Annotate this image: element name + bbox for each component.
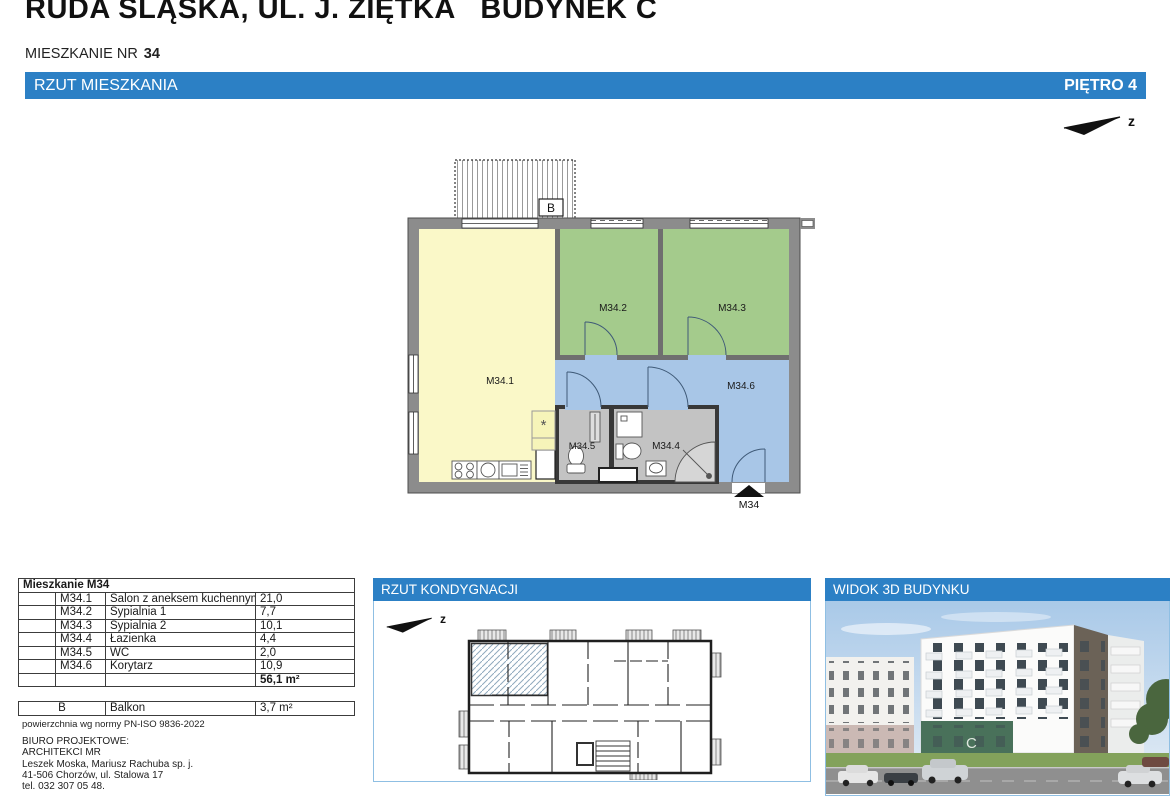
balcony-name: Balkon — [106, 702, 256, 716]
storey-panel: RZUT KONDYGNACJI z — [373, 578, 811, 782]
room-label-m343: M34.3 — [718, 303, 746, 314]
room-name: Sypialnia 2 — [106, 619, 256, 633]
storey-north-label: z — [440, 612, 446, 626]
office-info: BIURO PROJEKTOWE: ARCHITEKCI MR Leszek M… — [22, 736, 193, 792]
main-building: C — [921, 625, 1144, 753]
room-code: M34.5 — [56, 646, 106, 660]
room-name: Łazienka — [106, 633, 256, 647]
room-area: 21,0 — [256, 592, 355, 606]
room-code: M34.6 — [56, 660, 106, 674]
apartment-floor-plan: B — [395, 150, 815, 510]
office-partners: Leszek Moska, Mariusz Rachuba sp. j. — [22, 759, 193, 770]
balcony: B — [455, 160, 575, 220]
table-total-row: 56,1 m² — [19, 673, 355, 687]
office-address: 41-506 Chorzów, ul. Stalowa 17 — [22, 770, 193, 781]
table-row: M34.5WC2,0 — [19, 646, 355, 660]
building-3d-render: C — [826, 601, 1169, 794]
area-table: Mieszkanie M34 M34.1Salon z aneksem kuch… — [18, 578, 355, 687]
room-label-m342: M34.2 — [599, 303, 627, 314]
balcony-code: B — [19, 702, 106, 716]
room-bedroom2 — [663, 229, 789, 355]
total-area: 56,1 m² — [256, 673, 355, 687]
section-bar-title: RZUT MIESZKANIA — [34, 77, 178, 95]
floor-badge: PIĘTRO 4 — [1064, 77, 1137, 95]
table-header-row: Mieszkanie M34 — [19, 579, 355, 593]
section-bar: RZUT MIESZKANIA PIĘTRO 4 — [25, 72, 1146, 99]
view3d-panel-title: WIDOK 3D BUDYNKU — [825, 578, 1170, 601]
page-title: RUDA ŚLĄSKA, UL. J. ZIĘTKA BUDYNEK C — [25, 0, 657, 26]
apartment-subtitle: MIESZKANIE NR34 — [25, 46, 160, 62]
room-label-m341: M34.1 — [486, 376, 514, 387]
room-code: M34.2 — [56, 606, 106, 620]
kitchen-fixtures — [452, 461, 531, 479]
balcony-table: B Balkon 3,7 m² — [18, 701, 355, 716]
table-row: M34.4Łazienka4,4 — [19, 633, 355, 647]
table-row: M34.2Sypialnia 17,7 — [19, 606, 355, 620]
room-name: Sypialnia 1 — [106, 606, 256, 620]
neighbour-building — [826, 657, 914, 759]
room-code: M34.1 — [56, 592, 106, 606]
balcony-area: 3,7 m² — [256, 702, 355, 716]
room-code: M34.4 — [56, 633, 106, 647]
room-name: WC — [106, 646, 256, 660]
room-label-m346: M34.6 — [727, 381, 755, 392]
room-label-m345: M34.5 — [569, 441, 595, 452]
apartment-number: 34 — [144, 46, 160, 62]
area-table-title: Mieszkanie M34 — [19, 579, 355, 593]
table-row: B Balkon 3,7 m² — [19, 702, 355, 716]
lawn — [826, 753, 1169, 767]
entrance-label: M34 — [739, 499, 760, 510]
storey-north-arrow-icon — [387, 618, 432, 632]
room-name: Salon z aneksem kuchennym — [106, 592, 256, 606]
building-letter: C — [966, 735, 977, 752]
view3d-panel: WIDOK 3D BUDYNKU — [825, 578, 1170, 796]
storey-panel-title: RZUT KONDYGNACJI — [373, 578, 811, 601]
room-area: 4,4 — [256, 633, 355, 647]
subtitle-label: MIESZKANIE NR — [25, 46, 138, 62]
room-area: 2,0 — [256, 646, 355, 660]
north-arrow-icon: z — [1058, 108, 1150, 142]
room-area: 10,1 — [256, 619, 355, 633]
table-row: M34.1Salon z aneksem kuchennym21,0 — [19, 592, 355, 606]
balcony-label: B — [547, 201, 555, 215]
kitchen-symbol: * — [541, 417, 547, 434]
office-phone: tel. 032 307 05 48. — [22, 781, 193, 792]
office-name: ARCHITEKCI MR — [22, 747, 193, 758]
room-code: M34.3 — [56, 619, 106, 633]
storey-plan: z — [374, 601, 810, 780]
room-name: Korytarz — [106, 660, 256, 674]
north-arrow-label: z — [1128, 113, 1135, 129]
norm-footnote: powierzchnia wg normy PN-ISO 9836-2022 — [22, 719, 205, 730]
highlighted-apartment — [472, 644, 548, 696]
room-area: 10,9 — [256, 660, 355, 674]
room-area: 7,7 — [256, 606, 355, 620]
room-bedroom1 — [560, 229, 658, 355]
office-heading: BIURO PROJEKTOWE: — [22, 736, 193, 747]
room-label-m344: M34.4 — [652, 441, 680, 452]
table-row: M34.6Korytarz10,9 — [19, 660, 355, 674]
table-row: M34.3Sypialnia 210,1 — [19, 619, 355, 633]
